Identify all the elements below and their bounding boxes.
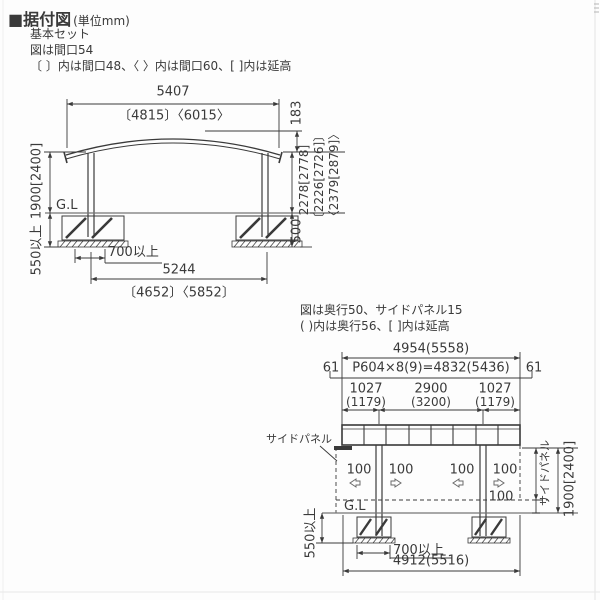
dim-offset-100-2: 100 [389, 464, 414, 477]
dim-roof-rise-183: 183 [291, 101, 304, 126]
dim-seg-1027-left: 1027 [349, 383, 382, 396]
ground-level-label: G.L [56, 199, 77, 212]
dim-span-alt: 〔4652〕〈5852〕 [123, 287, 235, 300]
side-panel-callout: サイドパネル [266, 434, 332, 445]
dim-offset-100-4: 100 [493, 464, 518, 477]
installation-diagram-line-art [0, 0, 600, 600]
dim-base-4912: 4912(5516) [393, 555, 469, 568]
dim-width-alt: 〔4815〕〈6015〉 [118, 110, 230, 123]
dim-panel-formula: P604×8(9)=4832(5436) [352, 362, 509, 375]
dim-post-height-1900: 1900[2400] [31, 143, 44, 219]
dim-seg-2900: 2900 [414, 383, 447, 396]
dim-offset-100-1: 100 [347, 464, 372, 477]
dim-seg-1027-right: 1027 [478, 383, 511, 396]
side-note-brackets: ( )内は奥行56、[ ]内は延高 [300, 320, 450, 332]
dim-post-height-1900-side: 1900[2400] [564, 441, 577, 517]
page-edges [0, 0, 600, 600]
dim-edge-61-left: 61 [323, 362, 340, 375]
dim-height-2278: 2278[2778] [298, 145, 310, 215]
dim-embed-550: 550以上 [31, 225, 44, 276]
note-bracket-legend: 〔 〕内は間口48、〈 〉内は間口60、[ ]内は延高 [30, 60, 291, 72]
note-width-54: 図は間口54 [30, 44, 93, 56]
dim-edge-61-right: 61 [526, 362, 543, 375]
dim-span-5244: 5244 [162, 264, 195, 277]
dim-offset-100-3: 100 [450, 464, 475, 477]
note-basic-set: 基本セット [30, 28, 90, 40]
ground-level-label-side: G.L [344, 500, 365, 513]
side-note-depth: 図は奥行50、サイドパネル15 [300, 304, 463, 316]
dim-embed-550-side: 550以上 [305, 508, 318, 559]
dim-footing-700: 700以上 [108, 246, 159, 259]
dim-embed-500: 500 [291, 219, 304, 244]
dim-seg-1179-right: (1179) [475, 396, 515, 408]
elevation-structure [45, 139, 315, 247]
dim-seg-1179-left: (1179) [346, 396, 386, 408]
dim-height-2226: 〔2226[2726]〕 [313, 130, 325, 224]
dim-width-5407: 5407 [156, 86, 189, 99]
dim-seg-3200: (3200) [411, 396, 451, 408]
dim-panel-gap-100: 100 [489, 491, 514, 504]
dim-height-2379: 〈2379[2879]〉 [328, 128, 340, 222]
dim-overall-4954: 4954(5558) [393, 343, 469, 356]
dim-side-panel-height: サイドパネル [540, 440, 551, 506]
